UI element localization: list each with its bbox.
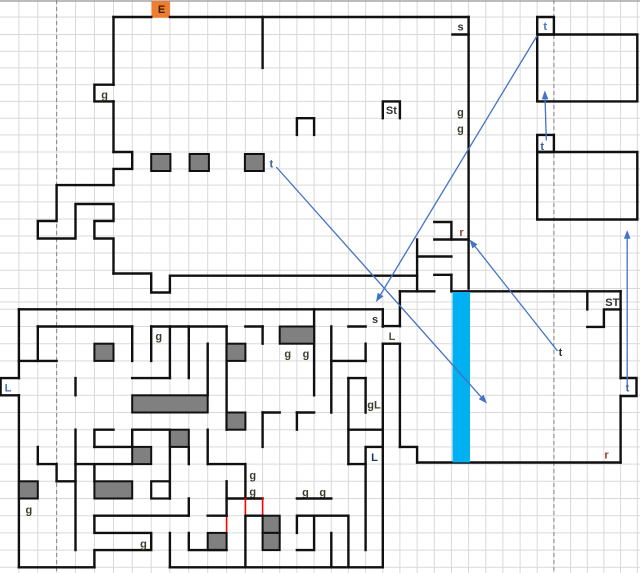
svg-text:L: L <box>389 331 396 343</box>
svg-text:t: t <box>559 347 563 359</box>
svg-text:ST: ST <box>605 297 619 309</box>
svg-text:g: g <box>302 487 309 499</box>
svg-text:L: L <box>371 452 378 464</box>
svg-text:g: g <box>101 90 108 102</box>
svg-text:St: St <box>386 105 397 117</box>
svg-text:g: g <box>140 539 147 551</box>
svg-text:E: E <box>158 4 165 16</box>
svg-text:L: L <box>5 383 12 395</box>
svg-text:g: g <box>319 487 326 499</box>
svg-text:g: g <box>249 470 256 482</box>
svg-text:g: g <box>457 107 464 119</box>
svg-text:s: s <box>457 22 463 34</box>
svg-text:s: s <box>372 314 378 326</box>
svg-text:g: g <box>249 487 256 499</box>
svg-text:gL: gL <box>367 400 381 412</box>
svg-text:g: g <box>303 349 310 361</box>
svg-text:g: g <box>284 349 291 361</box>
svg-text:r: r <box>459 227 464 239</box>
svg-text:r: r <box>604 450 609 462</box>
svg-text:g: g <box>26 505 33 517</box>
svg-text:g: g <box>457 124 464 136</box>
svg-text:t: t <box>269 158 273 170</box>
svg-text:t: t <box>543 21 547 33</box>
svg-text:g: g <box>155 331 162 343</box>
